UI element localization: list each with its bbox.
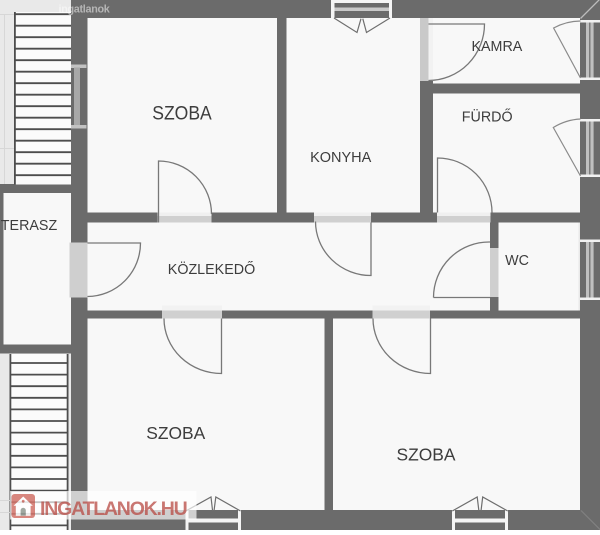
svg-text:KAMRA: KAMRA — [471, 39, 522, 55]
svg-text:FÜRDŐ: FÜRDŐ — [462, 108, 513, 126]
svg-text:SZOBA: SZOBA — [397, 445, 456, 465]
svg-text:SZOBA: SZOBA — [146, 423, 205, 443]
svg-text:INGATLANOK.HU: INGATLANOK.HU — [40, 498, 187, 520]
svg-text:SZOBA: SZOBA — [152, 103, 212, 124]
svg-text:KONYHA: KONYHA — [310, 150, 372, 166]
svg-text:ingatlanok: ingatlanok — [59, 4, 111, 16]
svg-text:WC: WC — [505, 253, 529, 269]
svg-text:KÖZLEKEDŐ: KÖZLEKEDŐ — [168, 260, 255, 278]
svg-text:TERASZ: TERASZ — [1, 218, 58, 234]
